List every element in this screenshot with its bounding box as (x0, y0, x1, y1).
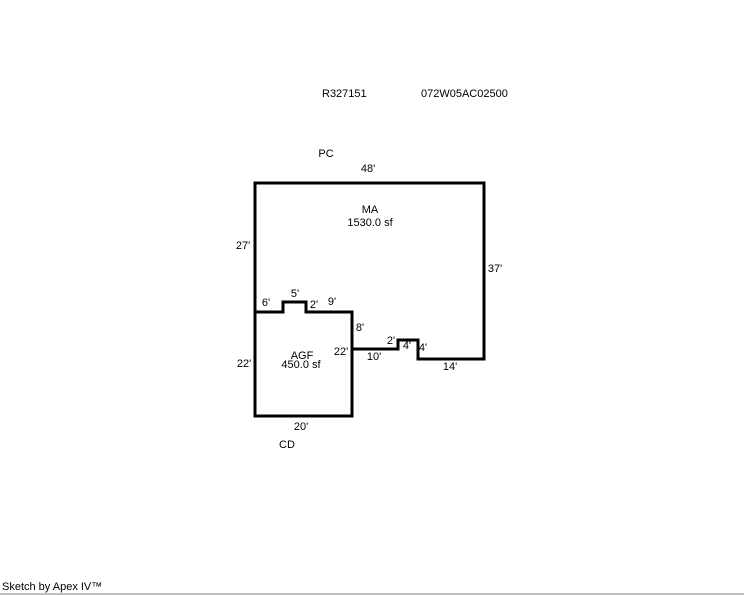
dim-4-side: 4' (419, 342, 427, 354)
dim-left-27: 27' (236, 240, 250, 252)
dim-2-notch: 2' (310, 299, 318, 311)
area-size-agf: 450.0 sf (281, 359, 320, 371)
dim-2-step: 2' (387, 335, 395, 347)
footer-credit: Sketch by Apex IV™ (2, 581, 102, 593)
dim-10: 10' (367, 351, 381, 363)
dim-22-right: 22' (334, 346, 348, 358)
dim-right-37: 37' (488, 263, 502, 275)
dim-9: 9' (328, 296, 336, 308)
area-size-ma: 1530.0 sf (347, 217, 392, 229)
sketch-page: R327151 072W05AC02500 PC48'MA1530.0 sf27… (0, 0, 744, 595)
dim-6: 6' (262, 297, 270, 309)
dim-5: 5' (291, 288, 299, 300)
area-label-pc: PC (318, 148, 333, 160)
dim-22-left: 22' (237, 358, 251, 370)
dim-8: 8' (356, 322, 364, 334)
dim-top-48: 48' (361, 163, 375, 175)
area-label-ma: MA (362, 204, 379, 216)
sketch-svg (0, 0, 744, 595)
dim-20: 20' (294, 421, 308, 433)
dim-4-top: 4' (403, 340, 411, 352)
area-label-cd: CD (279, 439, 295, 451)
dim-14: 14' (443, 361, 457, 373)
